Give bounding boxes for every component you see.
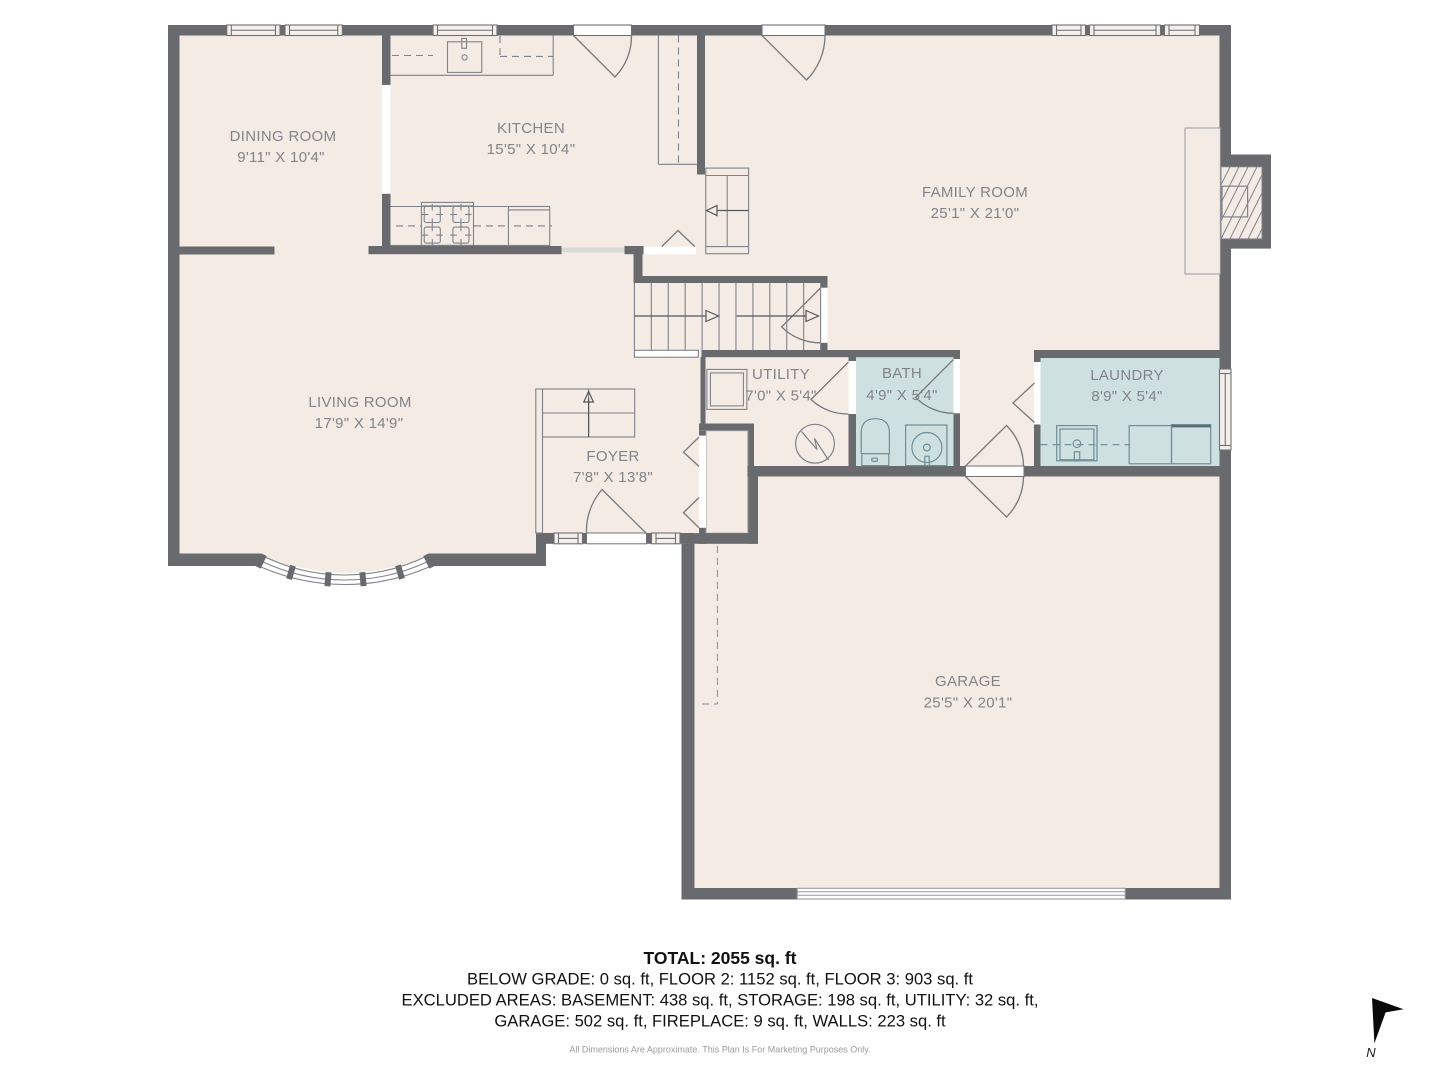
- svg-text:4'9" X 5'4": 4'9" X 5'4": [866, 387, 937, 404]
- svg-text:KITCHEN: KITCHEN: [497, 120, 565, 137]
- svg-text:FAMILY ROOM: FAMILY ROOM: [922, 184, 1028, 201]
- svg-text:BELOW GRADE: 0 sq. ft, FLOOR 2: BELOW GRADE: 0 sq. ft, FLOOR 2: 1152 sq.…: [467, 970, 973, 989]
- svg-text:GARAGE: GARAGE: [935, 673, 1001, 690]
- svg-text:15'5" X 10'4": 15'5" X 10'4": [487, 141, 576, 158]
- svg-text:BATH: BATH: [882, 365, 922, 382]
- svg-text:7'8" X 13'8": 7'8" X 13'8": [573, 469, 653, 486]
- svg-text:TOTAL: 2055 sq. ft: TOTAL: 2055 sq. ft: [644, 948, 797, 968]
- svg-text:25'1" X 21'0": 25'1" X 21'0": [931, 205, 1020, 222]
- svg-text:GARAGE: 502 sq. ft, FIREPLACE:: GARAGE: 502 sq. ft, FIREPLACE: 9 sq. ft,…: [494, 1012, 946, 1031]
- svg-text:17'9" X 14'9": 17'9" X 14'9": [315, 415, 404, 432]
- svg-text:FOYER: FOYER: [586, 448, 639, 465]
- svg-text:8'9" X 5'4": 8'9" X 5'4": [1091, 388, 1162, 405]
- svg-text:LIVING ROOM: LIVING ROOM: [308, 394, 411, 411]
- svg-text:EXCLUDED AREAS: BASEMENT: 438: EXCLUDED AREAS: BASEMENT: 438 sq. ft, ST…: [402, 991, 1039, 1010]
- svg-text:25'5" X 20'1": 25'5" X 20'1": [924, 695, 1013, 712]
- svg-text:LAUNDRY: LAUNDRY: [1090, 367, 1164, 384]
- svg-text:9'11" X 10'4": 9'11" X 10'4": [237, 149, 325, 166]
- svg-text:UTILITY: UTILITY: [752, 366, 810, 383]
- svg-text:7'0" X 5'4": 7'0" X 5'4": [745, 388, 816, 405]
- svg-text:DINING ROOM: DINING ROOM: [230, 128, 337, 145]
- svg-text:All Dimensions Are Approximate: All Dimensions Are Approximate. This Pla…: [569, 1045, 870, 1055]
- svg-text:N: N: [1366, 1045, 1376, 1060]
